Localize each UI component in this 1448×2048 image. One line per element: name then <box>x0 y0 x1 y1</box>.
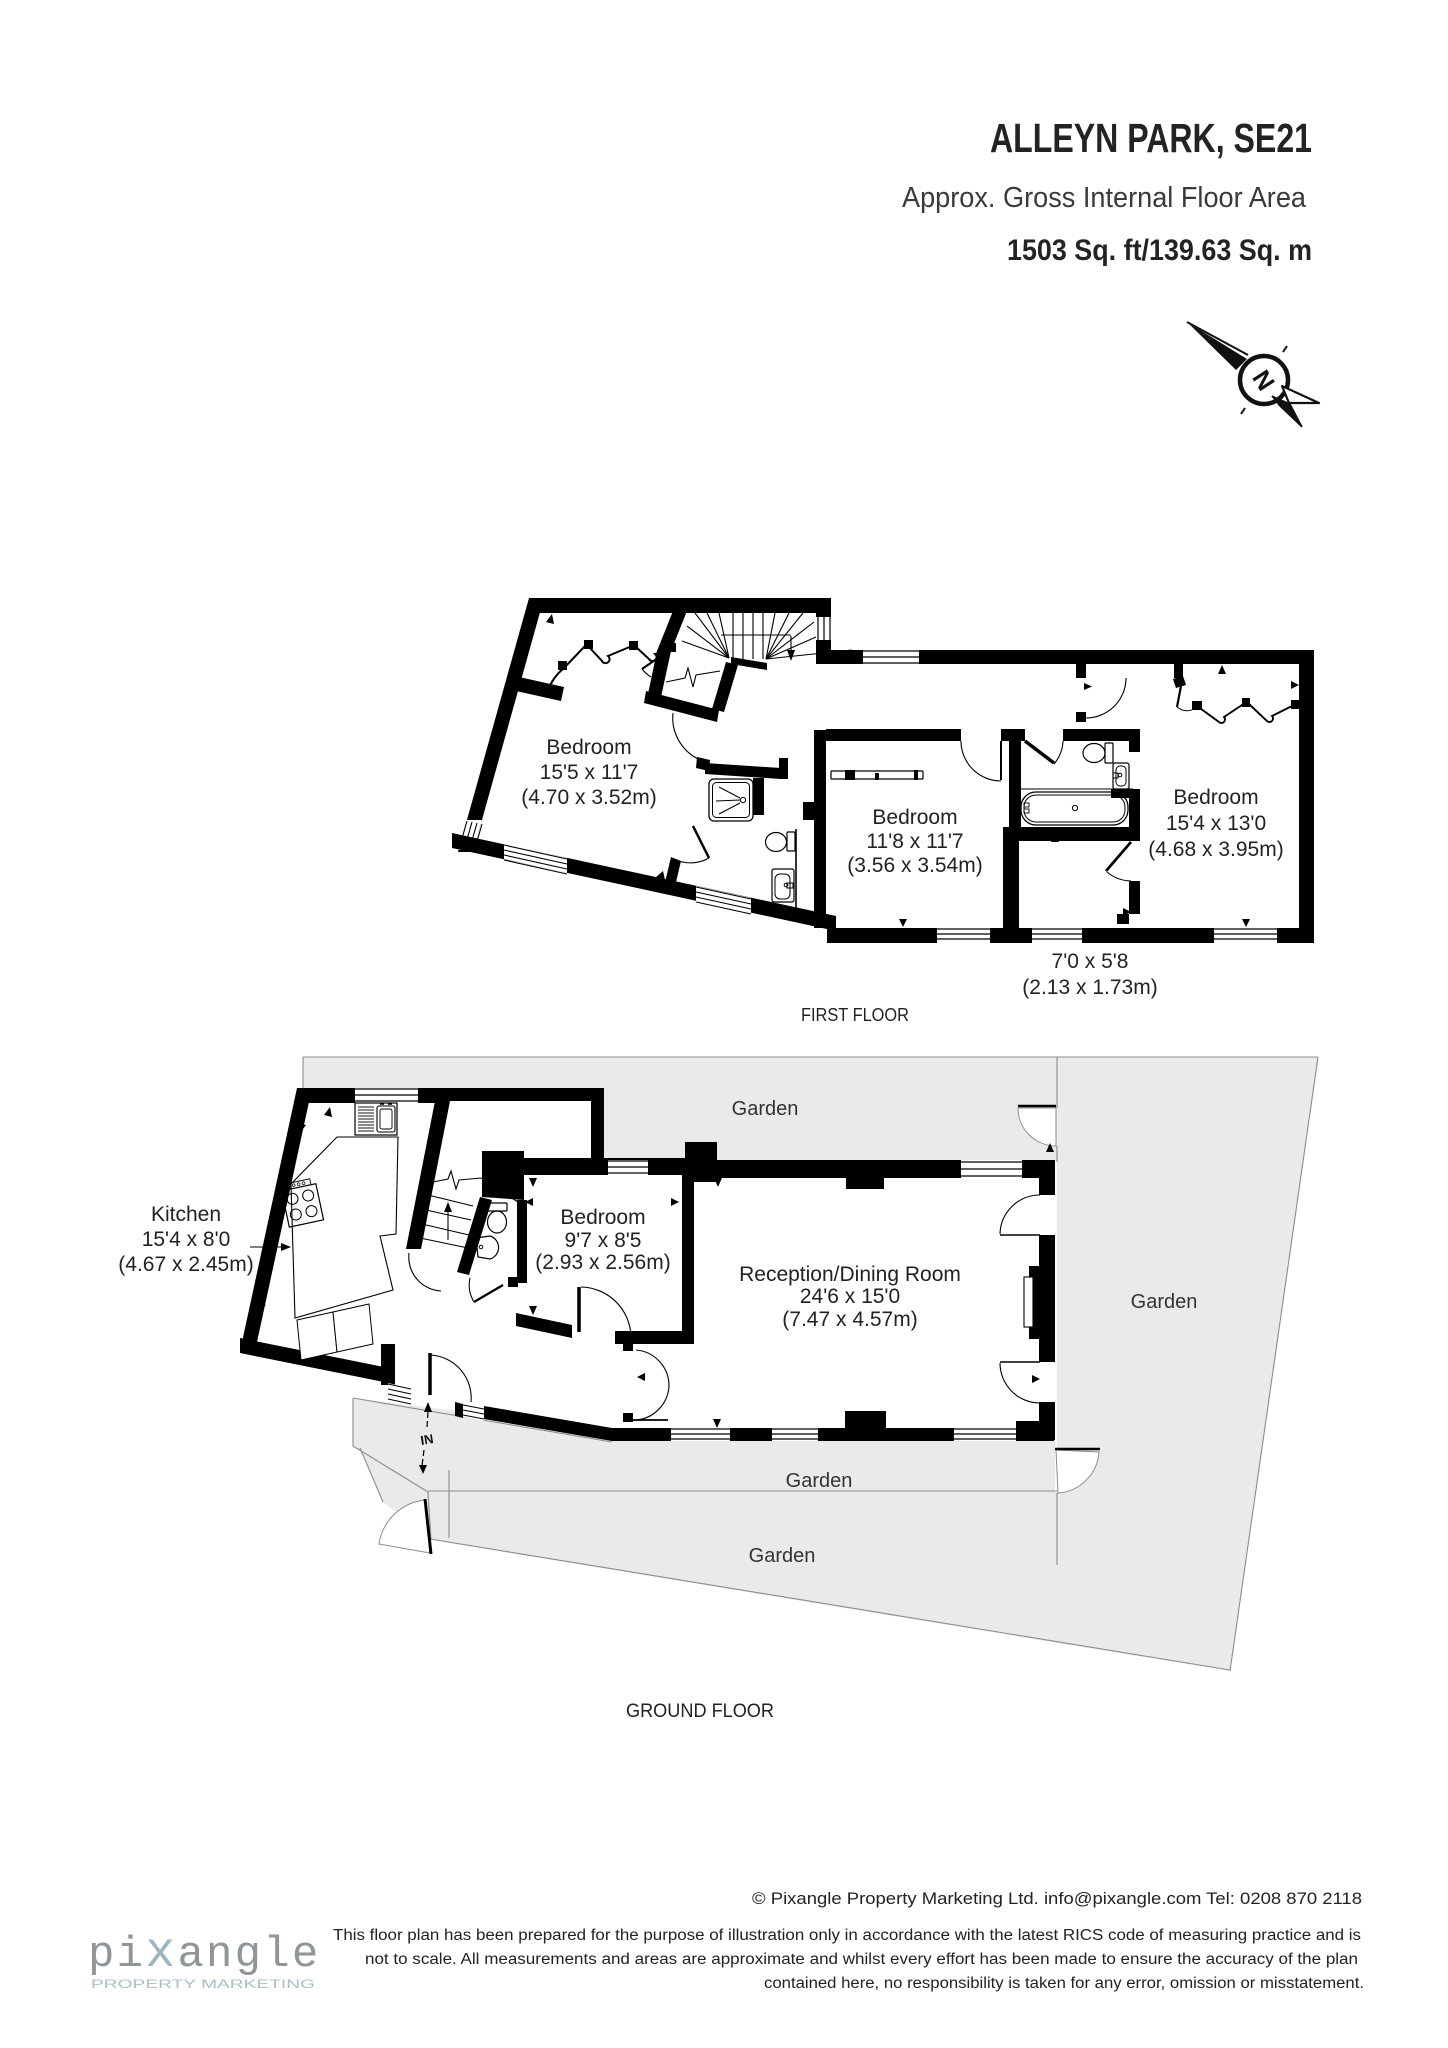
svg-text:Bedroom: Bedroom <box>1173 786 1258 809</box>
svg-text:contained here, no responsibil: contained here, no responsibility is tak… <box>764 1975 1364 1992</box>
svg-text:(2.13 x 1.73m): (2.13 x 1.73m) <box>1022 976 1157 999</box>
svg-text:pixangle: pixangle <box>88 1925 320 1982</box>
svg-text:(7.47 x 4.57m): (7.47 x 4.57m) <box>782 1308 917 1331</box>
svg-text:ALLEYN PARK, SE21: ALLEYN PARK, SE21 <box>990 115 1312 161</box>
svg-text:Bedroom: Bedroom <box>560 1206 645 1229</box>
svg-text:Garden: Garden <box>786 1470 853 1492</box>
svg-text:Reception/Dining Room: Reception/Dining Room <box>739 1263 961 1286</box>
svg-text:(4.68 x 3.95m): (4.68 x 3.95m) <box>1148 838 1283 861</box>
svg-text:1503 Sq. ft/139.63 Sq. m: 1503 Sq. ft/139.63 Sq. m <box>1007 234 1312 267</box>
svg-text:Bedroom: Bedroom <box>872 806 957 829</box>
svg-text:Garden: Garden <box>749 1545 816 1567</box>
svg-text:This floor plan has been prepa: This floor plan has been prepared for th… <box>333 1927 1361 1944</box>
svg-text:(4.67 x 2.45m): (4.67 x 2.45m) <box>118 1253 253 1276</box>
svg-text:15'5 x 11'7: 15'5 x 11'7 <box>540 761 639 784</box>
svg-text:Approx. Gross Internal Floor A: Approx. Gross Internal Floor Area <box>902 182 1307 214</box>
svg-text:9'7 x 8'5: 9'7 x 8'5 <box>565 1229 642 1252</box>
svg-text:7'0 x 5'8: 7'0 x 5'8 <box>1052 950 1129 973</box>
svg-text:(3.56 x 3.54m): (3.56 x 3.54m) <box>847 854 982 877</box>
svg-text:15'4 x 8'0: 15'4 x 8'0 <box>142 1228 231 1251</box>
svg-text:11'8 x 11'7: 11'8 x 11'7 <box>866 830 963 853</box>
svg-text:24'6 x 15'0: 24'6 x 15'0 <box>800 1285 900 1308</box>
svg-text:Bedroom: Bedroom <box>546 736 631 759</box>
svg-text:15'4 x 13'0: 15'4 x 13'0 <box>1166 812 1266 835</box>
svg-text:PROPERTY MARKETING: PROPERTY MARKETING <box>91 1977 315 1991</box>
svg-text:GROUND FLOOR: GROUND FLOOR <box>626 1701 774 1722</box>
svg-text:Garden: Garden <box>732 1098 799 1120</box>
svg-text:(2.93 x 2.56m): (2.93 x 2.56m) <box>535 1251 670 1274</box>
svg-text:Garden: Garden <box>1131 1291 1198 1313</box>
svg-text:IN: IN <box>419 1431 434 1448</box>
svg-text:(4.70 x 3.52m): (4.70 x 3.52m) <box>521 786 656 809</box>
svg-text:not to scale. All measurements: not to scale. All measurements and areas… <box>365 1951 1358 1968</box>
svg-text:Kitchen: Kitchen <box>151 1203 221 1226</box>
svg-text:FIRST FLOOR: FIRST FLOOR <box>801 1005 909 1025</box>
svg-text:© Pixangle Property Marketing: © Pixangle Property Marketing Ltd. info@… <box>752 1889 1362 1908</box>
